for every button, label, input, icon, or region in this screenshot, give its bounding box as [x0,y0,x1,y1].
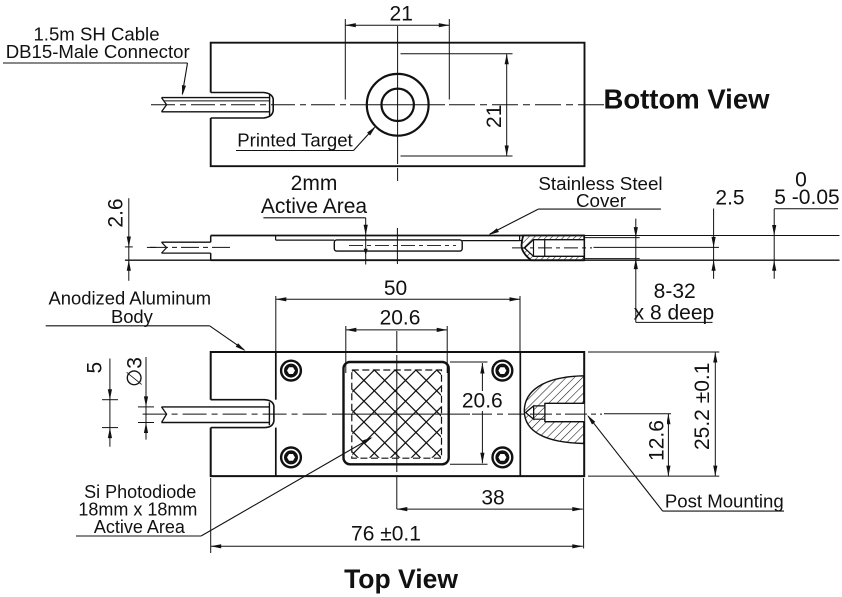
svg-text:25.2 ±0.1: 25.2 ±0.1 [691,363,714,450]
svg-text:Bottom View: Bottom View [603,84,770,115]
svg-text:38: 38 [481,487,504,510]
svg-text:12.6: 12.6 [646,420,669,461]
svg-text:2mm: 2mm [291,172,338,195]
svg-text:Active Area: Active Area [261,195,368,218]
svg-text:2.5: 2.5 [715,187,744,210]
svg-text:Active Area: Active Area [94,517,186,537]
svg-text:20.6: 20.6 [380,307,421,330]
svg-text:∅3: ∅3 [123,357,146,387]
svg-text:Cover: Cover [576,190,626,211]
svg-text:Body: Body [111,306,154,327]
svg-text:20.6: 20.6 [462,390,503,413]
svg-text:50: 50 [384,277,407,300]
svg-text:5: 5 [84,362,107,374]
svg-text:Printed Target: Printed Target [237,130,353,151]
svg-text:2.6: 2.6 [105,198,128,227]
svg-text:8-32: 8-32 [654,280,696,303]
svg-text:21: 21 [483,105,506,128]
svg-text:Top View: Top View [344,564,458,594]
svg-text:76 ±0.1: 76 ±0.1 [351,523,421,546]
svg-text:DB15-Male Connector: DB15-Male Connector [6,41,190,62]
svg-text:21: 21 [390,2,413,25]
svg-text:5 -0.05: 5 -0.05 [774,186,839,209]
svg-text:Post Mounting: Post Mounting [665,490,784,511]
svg-text:x 8 deep: x 8 deep [634,302,715,325]
